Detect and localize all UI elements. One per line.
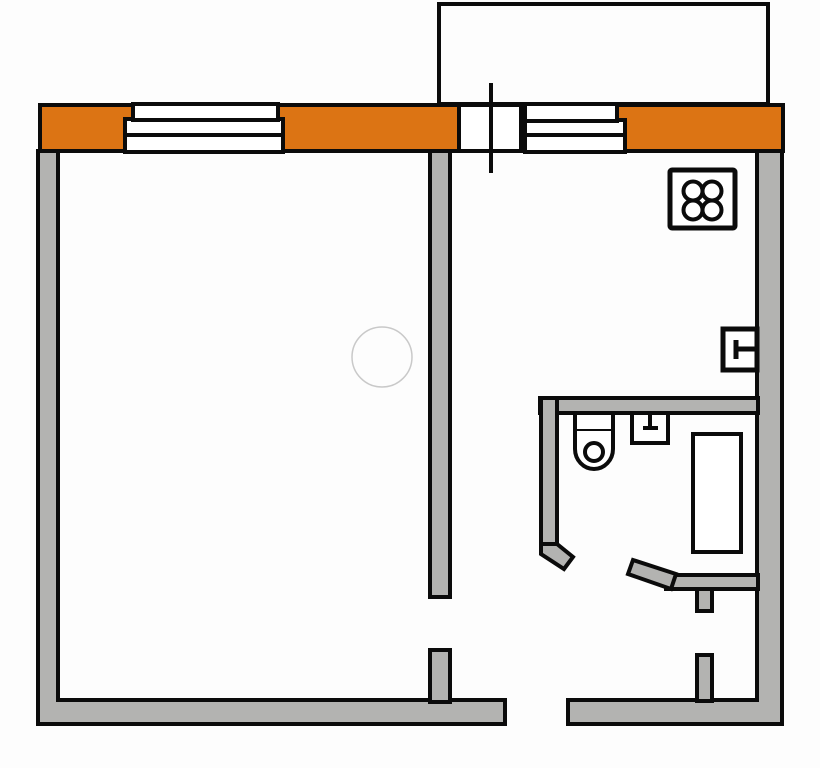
closet-wall-stub-top: [697, 589, 712, 611]
partition-wall-stub: [430, 650, 450, 702]
window-left-band-top: [133, 104, 278, 120]
toilet-icon: [575, 413, 613, 469]
window-left-band-bottom: [125, 135, 283, 152]
bathtub-icon: [693, 434, 741, 552]
window-right: [525, 104, 625, 152]
window-right-band-top: [525, 104, 617, 121]
window-left: [125, 104, 283, 152]
balcony-outline: [439, 4, 768, 104]
burner-icon: [703, 182, 722, 201]
bathroom-wall-left: [541, 398, 557, 546]
kitchen-sink-icon: [723, 329, 759, 370]
window-right-band-bottom: [525, 135, 625, 152]
bathroom-wall-top: [540, 398, 758, 413]
toilet-drain: [585, 443, 603, 461]
floor-plan-canvas: [0, 0, 820, 768]
burner-icon: [703, 201, 722, 220]
bathroom-wall-left-foot: [541, 544, 573, 569]
burner-icon: [684, 182, 703, 201]
burner-icon: [684, 201, 703, 220]
partition-wall: [430, 151, 450, 597]
washbasin-icon: [632, 413, 668, 443]
room-circle-marker: [352, 327, 412, 387]
toilet-cistern: [575, 413, 613, 431]
floor-plan: [0, 0, 820, 768]
closet-wall-stub-bottom: [697, 655, 712, 701]
stove-icon: [670, 170, 735, 228]
bathroom-door-jamb: [628, 560, 676, 589]
bathroom-wall-bottom: [666, 575, 758, 589]
stove-body: [670, 170, 735, 228]
